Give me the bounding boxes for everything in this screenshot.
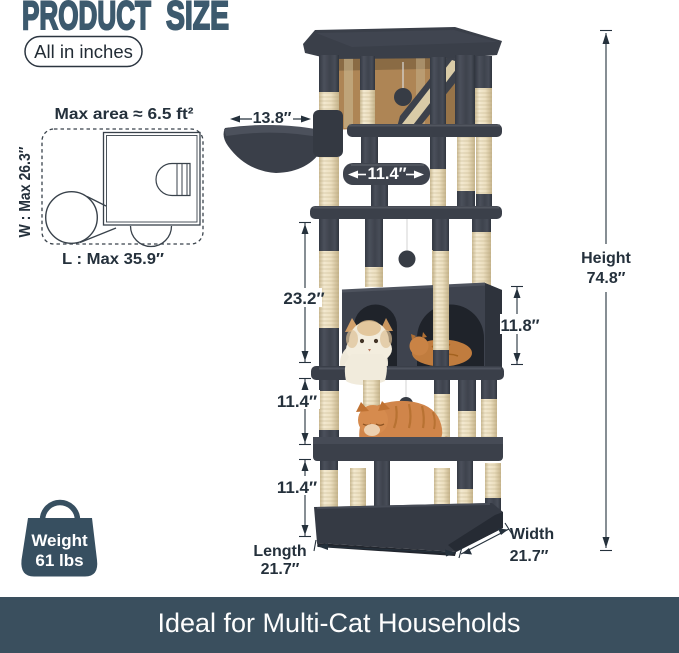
svg-text:11.4″: 11.4″ <box>277 478 317 497</box>
svg-text:SIZE: SIZE <box>166 0 229 38</box>
svg-text:Max area ≈ 6.5 ft²: Max area ≈ 6.5 ft² <box>55 106 194 123</box>
svg-text:Height: Height <box>581 250 631 267</box>
svg-text:Weight: Weight <box>31 531 88 550</box>
svg-text:11.8″: 11.8″ <box>500 317 539 335</box>
svg-text:21.7″: 21.7″ <box>261 561 300 578</box>
svg-text:W : Max 26.3″: W : Max 26.3″ <box>17 146 34 238</box>
svg-text:21.7″: 21.7″ <box>510 548 549 565</box>
svg-text:Ideal for Multi-Cat Households: Ideal for Multi-Cat Households <box>158 608 521 638</box>
svg-text:11.4″: 11.4″ <box>367 165 406 183</box>
svg-text:Width: Width <box>510 526 554 543</box>
svg-text:Length: Length <box>253 543 306 560</box>
svg-text:PRODUCT: PRODUCT <box>22 0 151 38</box>
svg-text:L : Max 35.9″: L : Max 35.9″ <box>62 251 165 268</box>
svg-text:61 lbs: 61 lbs <box>35 551 83 570</box>
svg-text:23.2″: 23.2″ <box>283 289 324 308</box>
svg-text:74.8″: 74.8″ <box>587 270 626 287</box>
svg-text:All in inches: All in inches <box>34 41 133 62</box>
svg-text:13.8″: 13.8″ <box>253 110 292 127</box>
svg-text:11.4″: 11.4″ <box>277 392 317 411</box>
